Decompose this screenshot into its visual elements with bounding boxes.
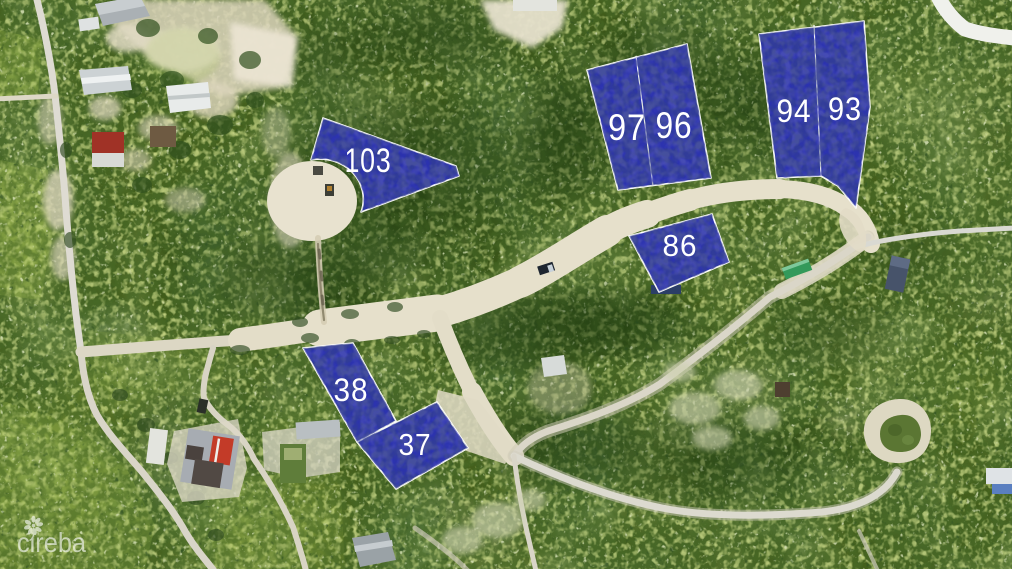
svg-text:37: 37 xyxy=(399,427,432,462)
svg-text:103: 103 xyxy=(345,142,392,180)
svg-text:96: 96 xyxy=(656,105,693,146)
svg-text:86: 86 xyxy=(663,228,698,263)
svg-text:cireba: cireba xyxy=(17,527,86,558)
svg-text:93: 93 xyxy=(828,91,862,127)
svg-text:97: 97 xyxy=(608,107,646,148)
svg-text:94: 94 xyxy=(777,93,812,129)
svg-text:38: 38 xyxy=(334,372,369,408)
